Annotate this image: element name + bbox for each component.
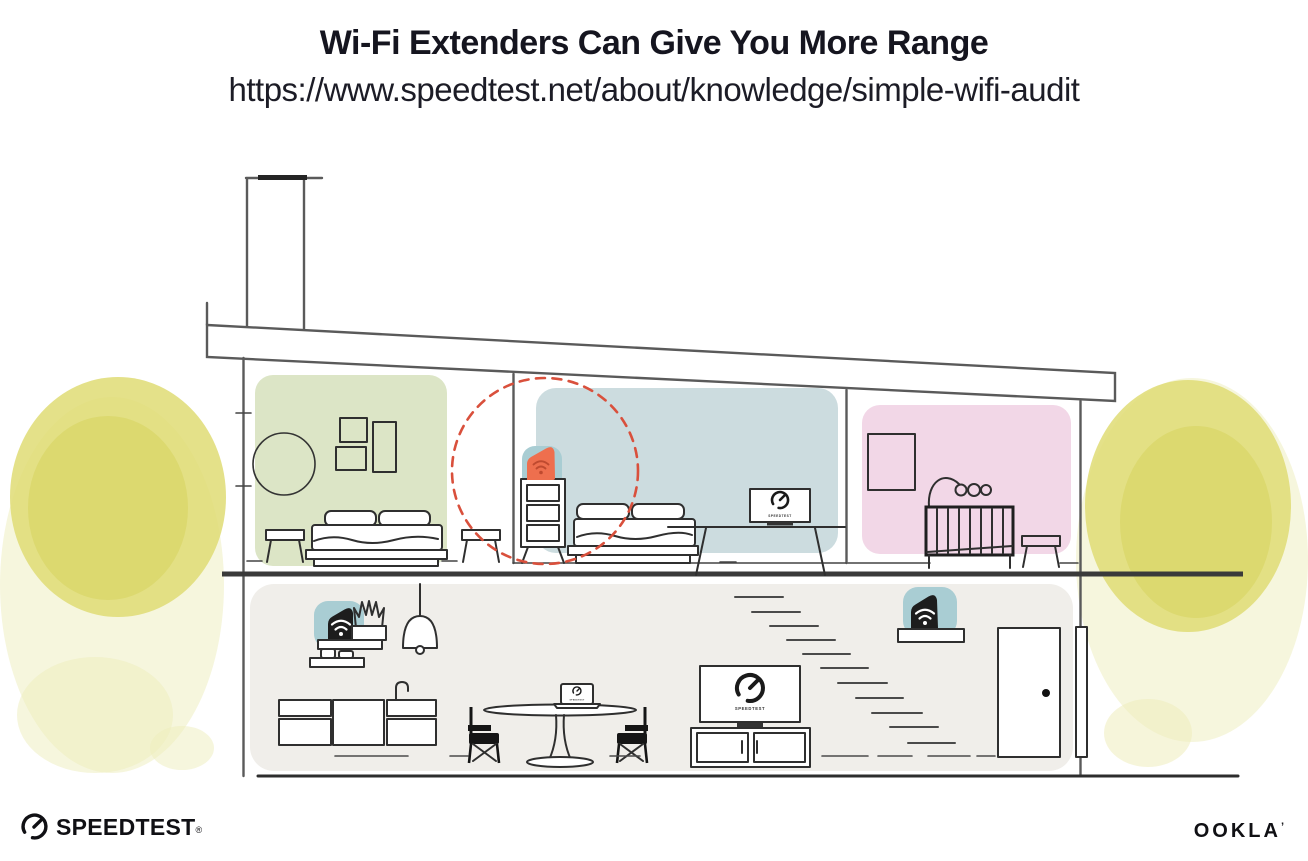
house-illustration: SPEEDTEST [0,0,1308,861]
entry-shelf [898,629,964,642]
chimney [246,175,322,331]
ookla-logo: OOKLA’ [1194,820,1284,843]
laptop-label: SPEEDTEST [569,700,584,702]
nightstool-right [462,530,500,562]
registered-mark: ® [195,825,202,835]
entry-door [998,628,1060,757]
speedtest-logo: SPEEDTEST® [20,812,202,842]
page-title: Wi-Fi Extenders Can Give You More Range [0,24,1308,63]
laptop: SPEEDTEST [554,684,600,708]
living-tv-label: SPEEDTEST [735,706,765,711]
header: Wi-Fi Extenders Can Give You More Range … [0,24,1308,109]
bedroom-tv-label: SPEEDTEST [768,514,791,518]
speedtest-wordmark: SPEEDTEST [56,814,195,840]
ookla-trademark-tick: ’ [1281,821,1284,833]
floor-slab [222,572,1243,577]
kitchen-shelf [318,640,382,649]
tv-stand [767,522,793,526]
chimney-cap [258,175,307,180]
page-url: https://www.speedtest.net/about/knowledg… [0,71,1308,109]
dresser [521,479,565,563]
living-tv: SPEEDTEST [700,666,800,727]
speedtest-gauge-icon [20,812,49,841]
tv-console [691,728,810,767]
door-sidelight [1076,627,1087,757]
pink-room-backdrop [862,405,1071,554]
bed [306,511,447,566]
ookla-wordmark: OOKLA [1194,820,1281,842]
door-knob [1042,689,1050,697]
tv-stand [737,723,763,727]
tree-foliage-left [0,377,226,773]
